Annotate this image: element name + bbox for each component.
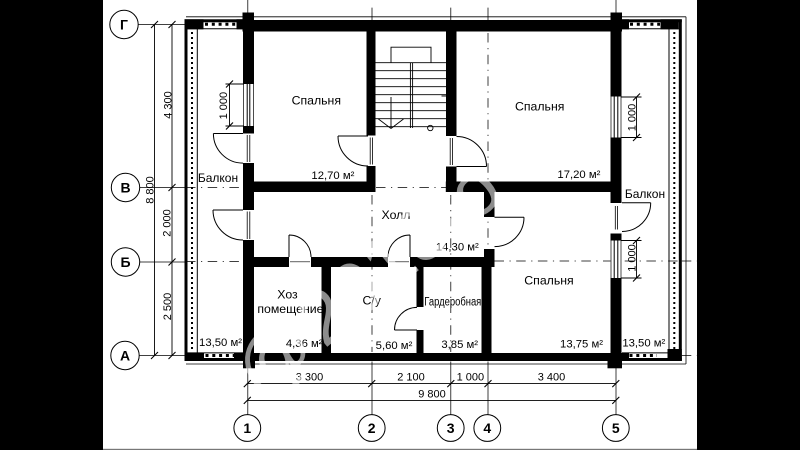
svg-text:2 500: 2 500 bbox=[162, 293, 174, 321]
svg-text:Балкон: Балкон bbox=[198, 171, 238, 185]
svg-text:5,60 м²: 5,60 м² bbox=[376, 340, 413, 352]
svg-text:1: 1 bbox=[243, 420, 251, 436]
svg-text:12,70 м²: 12,70 м² bbox=[311, 170, 354, 182]
svg-text:А: А bbox=[120, 348, 130, 364]
svg-text:2 000: 2 000 bbox=[161, 209, 173, 237]
svg-text:Гардеробная: Гардеробная bbox=[424, 297, 481, 309]
svg-text:Б: Б bbox=[120, 254, 130, 270]
svg-text:1 000: 1 000 bbox=[627, 104, 639, 132]
svg-text:3,85 м²: 3,85 м² bbox=[441, 339, 478, 351]
svg-text:2: 2 bbox=[368, 420, 376, 436]
svg-text:В: В bbox=[120, 180, 130, 196]
svg-text:9 800: 9 800 bbox=[418, 389, 446, 401]
svg-text:1 000: 1 000 bbox=[457, 372, 485, 384]
svg-text:5: 5 bbox=[612, 420, 620, 436]
svg-text:4 300: 4 300 bbox=[162, 91, 174, 119]
svg-text:1 000: 1 000 bbox=[218, 92, 230, 120]
svg-text:Спальня: Спальня bbox=[292, 94, 341, 108]
svg-text:8 800: 8 800 bbox=[145, 176, 157, 204]
svg-text:3 400: 3 400 bbox=[538, 372, 566, 384]
svg-text:Балкон: Балкон bbox=[625, 187, 665, 201]
svg-text:Г: Г bbox=[120, 17, 128, 33]
svg-text:1 000: 1 000 bbox=[627, 244, 639, 272]
svg-text:2 100: 2 100 bbox=[397, 372, 425, 384]
svg-text:Спальня: Спальня bbox=[524, 274, 573, 288]
svg-text:13,75 м²: 13,75 м² bbox=[560, 338, 603, 350]
svg-text:4: 4 bbox=[483, 420, 491, 436]
svg-text:17,20 м²: 17,20 м² bbox=[557, 169, 600, 181]
svg-text:13,50 м²: 13,50 м² bbox=[622, 338, 665, 350]
svg-text:Спальня: Спальня bbox=[515, 100, 564, 114]
svg-text:3: 3 bbox=[447, 420, 455, 436]
